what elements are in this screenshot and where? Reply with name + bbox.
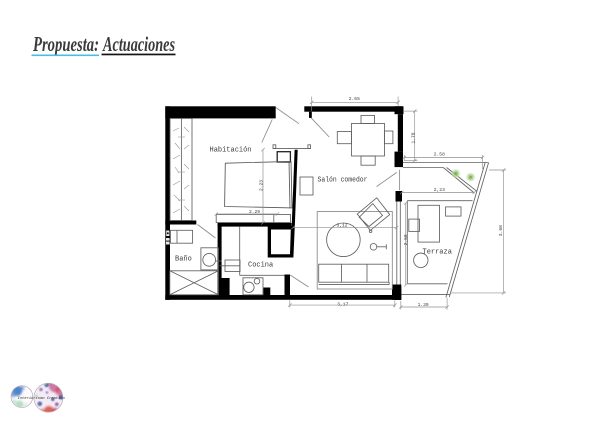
svg-text:Interiorismo Creativo: Interiorismo Creativo bbox=[18, 396, 66, 401]
svg-text:Baño: Baño bbox=[175, 256, 192, 264]
svg-text:1.39: 1.39 bbox=[418, 302, 429, 308]
svg-text:2.29: 2.29 bbox=[249, 209, 260, 215]
svg-text:2.58: 2.58 bbox=[434, 151, 445, 157]
svg-text:3.68: 3.68 bbox=[498, 225, 504, 236]
svg-text:2.23: 2.23 bbox=[259, 180, 265, 191]
svg-text:Terraza: Terraza bbox=[423, 249, 452, 257]
svg-text:2,23: 2,23 bbox=[434, 187, 445, 193]
svg-text:Salón comedor: Salón comedor bbox=[318, 177, 368, 185]
svg-text:1.78: 1.78 bbox=[411, 132, 417, 143]
svg-text:Actuaciones: Actuaciones bbox=[102, 32, 175, 56]
svg-text:3,17: 3,17 bbox=[337, 302, 348, 308]
svg-text:2,58: 2,58 bbox=[403, 234, 409, 245]
svg-text:Habitación: Habitación bbox=[210, 147, 252, 155]
svg-text:Cocina: Cocina bbox=[248, 262, 273, 270]
svg-text:3,12: 3,12 bbox=[337, 222, 348, 228]
svg-text:2.65: 2.65 bbox=[349, 96, 360, 102]
svg-text:Propuesta:: Propuesta: bbox=[32, 32, 99, 56]
